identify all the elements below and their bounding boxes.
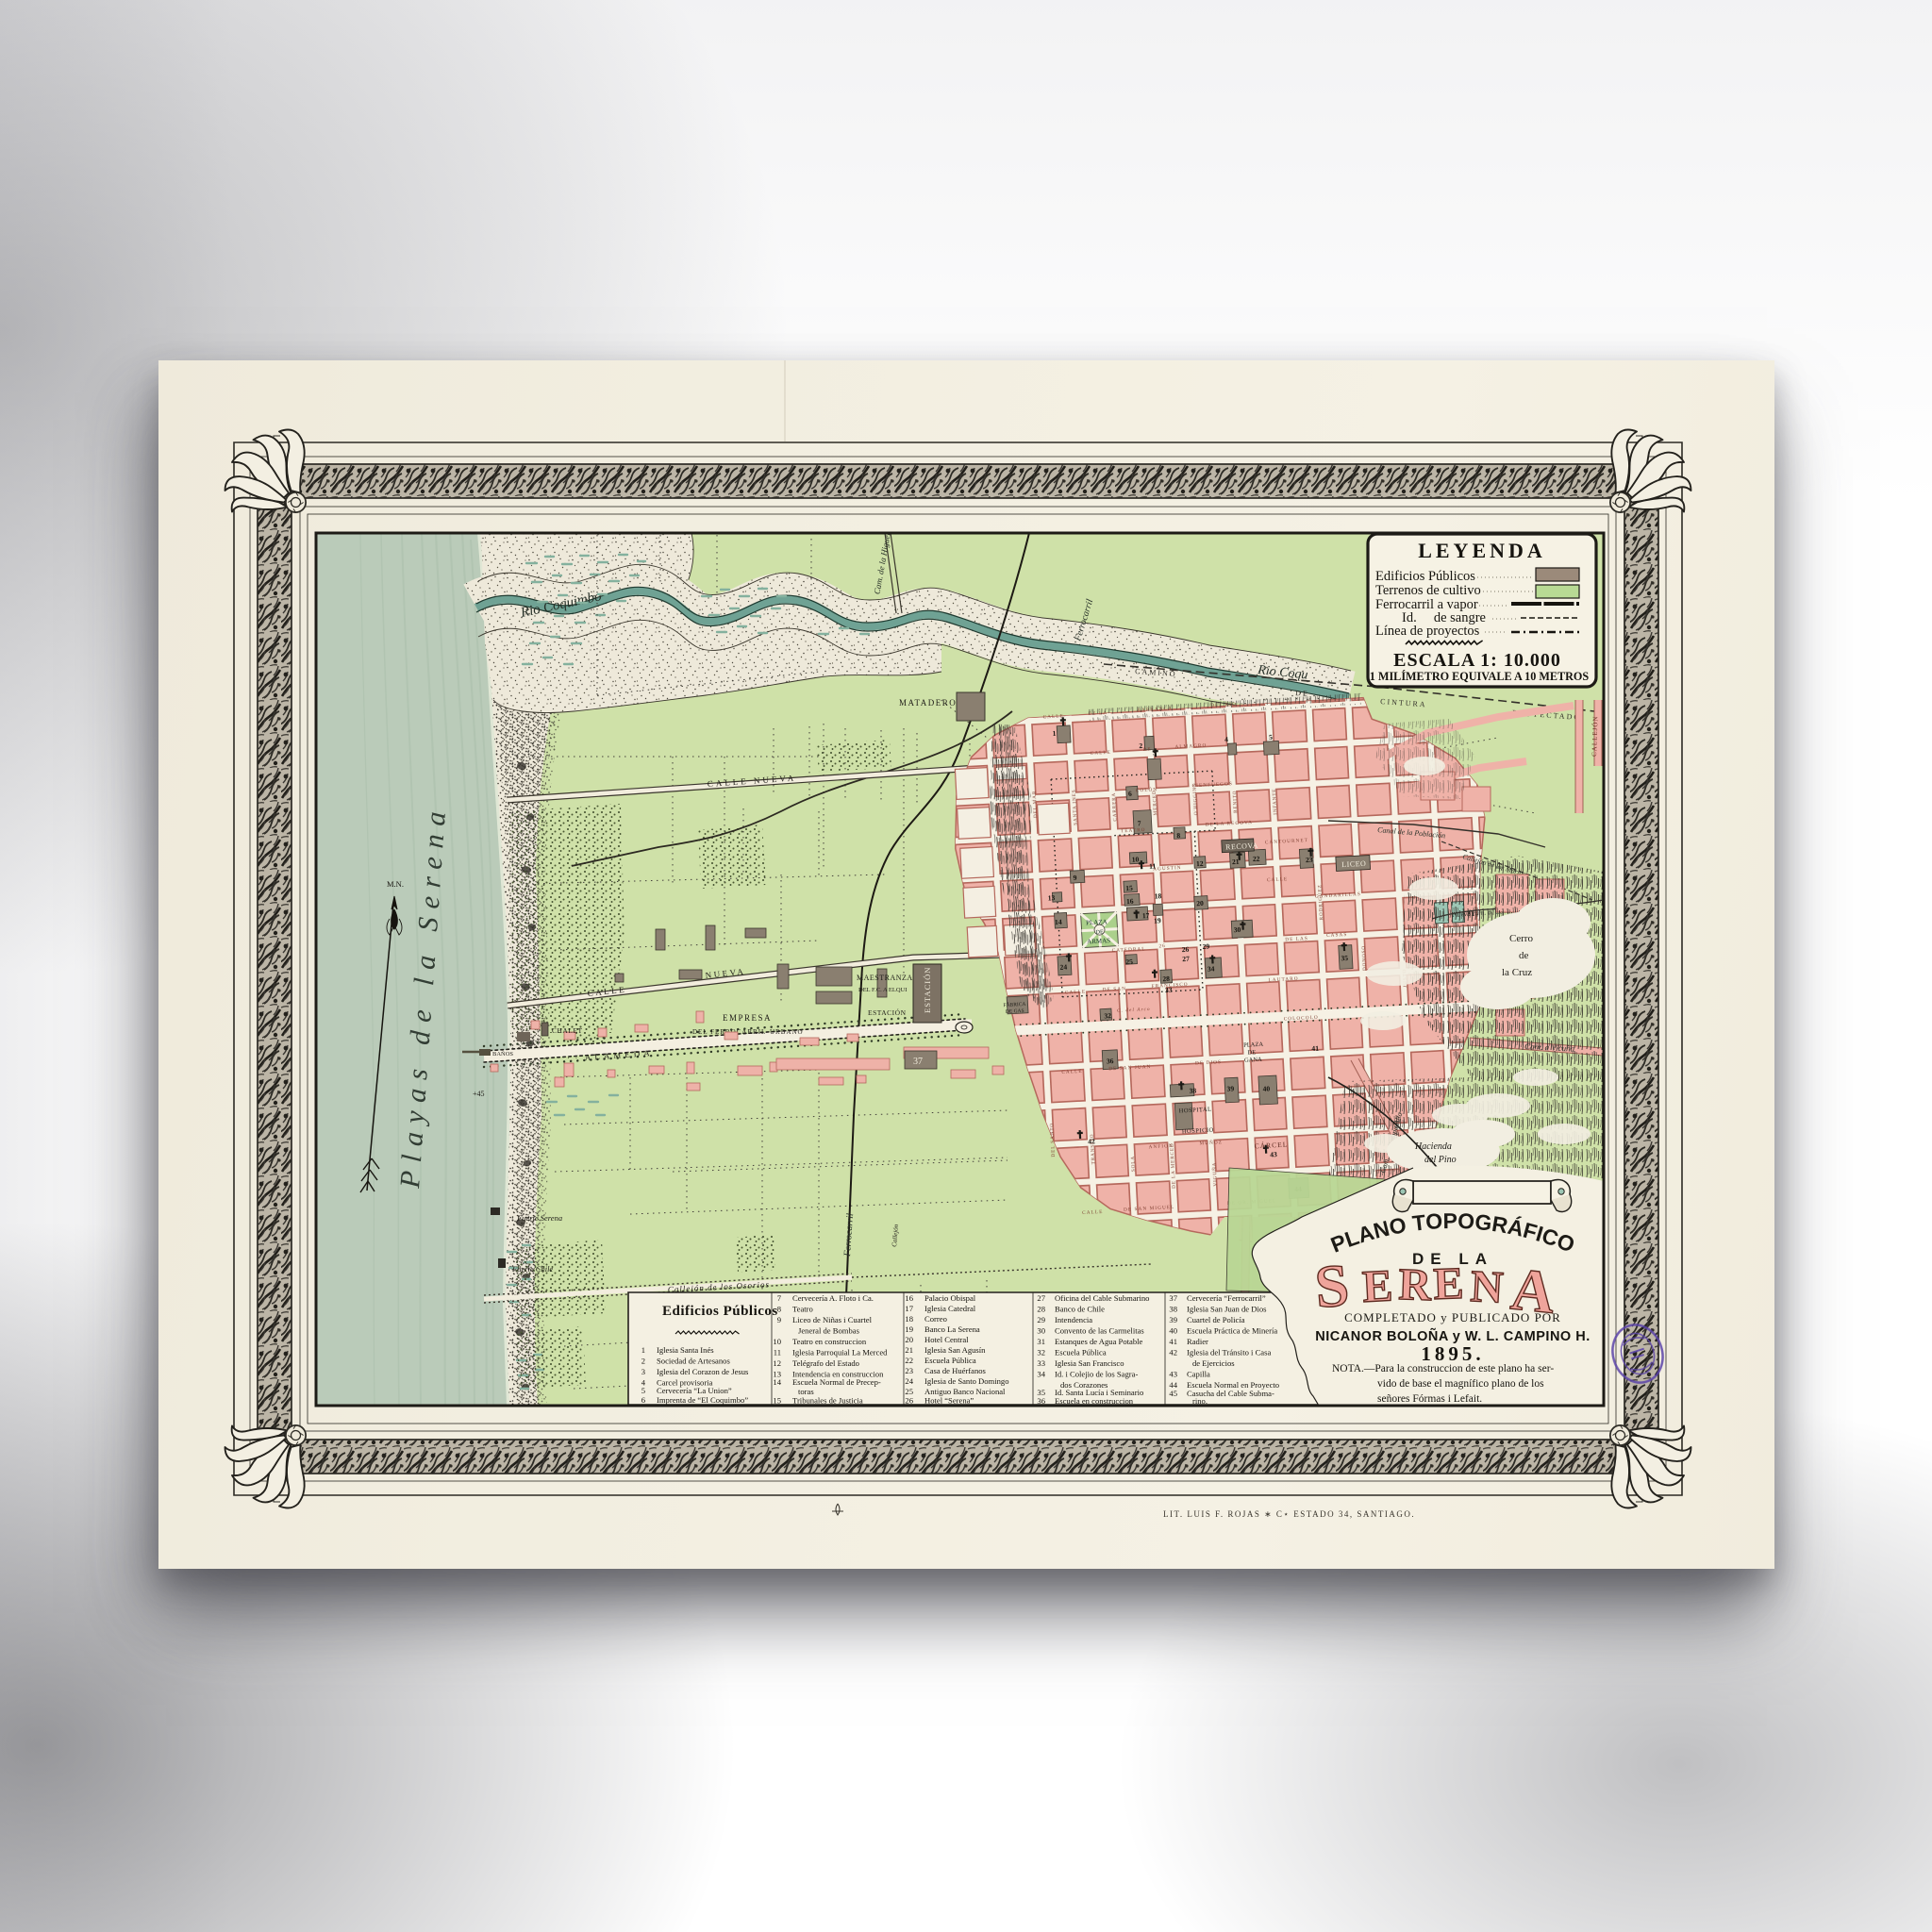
svg-text:GANA: GANA <box>1244 1057 1262 1064</box>
svg-text:CHALET: CHALET <box>552 1026 583 1035</box>
svg-text:41: 41 <box>1311 1044 1319 1053</box>
svg-text:28: 28 <box>1037 1305 1045 1314</box>
svg-text:Escuela Pública: Escuela Pública <box>924 1356 976 1365</box>
svg-text:14: 14 <box>1055 918 1062 926</box>
svg-text:13: 13 <box>1047 893 1055 902</box>
svg-text:37: 37 <box>1169 1293 1177 1303</box>
svg-text:Telégrafo del Estado: Telégrafo del Estado <box>792 1358 859 1368</box>
svg-text:Terrenos de cultivo: Terrenos de cultivo <box>1375 583 1481 598</box>
svg-text:11: 11 <box>774 1348 781 1357</box>
svg-text:Sociedad de Artesanos: Sociedad de Artesanos <box>657 1357 730 1366</box>
svg-text:19: 19 <box>905 1324 913 1334</box>
svg-text:PLAZA: PLAZA <box>1086 918 1108 926</box>
svg-text:22: 22 <box>905 1356 913 1365</box>
svg-text:26: 26 <box>905 1396 913 1406</box>
svg-text:Iglesia del Tránsito i Casa: Iglesia del Tránsito i Casa <box>1187 1348 1271 1357</box>
svg-text:24: 24 <box>1059 962 1067 971</box>
svg-text:Cervecería “Ferrocarril”: Cervecería “Ferrocarril” <box>1187 1293 1266 1303</box>
svg-text:ESTACIÓN: ESTACIÓN <box>923 967 932 1013</box>
svg-text:9: 9 <box>777 1315 781 1324</box>
svg-text:Cuartel de Policía: Cuartel de Policía <box>1187 1315 1245 1324</box>
svg-text:10: 10 <box>773 1337 781 1346</box>
svg-text:ESCALA 1: 10.000: ESCALA 1: 10.000 <box>1393 650 1561 671</box>
svg-text:43: 43 <box>1169 1370 1177 1379</box>
svg-text:DE: DE <box>1247 1049 1256 1056</box>
svg-text:7: 7 <box>777 1293 782 1303</box>
svg-text:Banco La Serena: Banco La Serena <box>924 1324 980 1334</box>
svg-text:38: 38 <box>1169 1305 1177 1314</box>
svg-text:Jeneral de Bombas: Jeneral de Bombas <box>798 1326 860 1336</box>
svg-text:30: 30 <box>1233 925 1241 934</box>
svg-text:DE GAS: DE GAS <box>1006 1008 1024 1015</box>
svg-text:Fuerte Chile: Fuerte Chile <box>511 1264 553 1274</box>
svg-text:1895.: 1895. <box>1421 1342 1484 1365</box>
svg-text:URBANO: URBANO <box>770 1028 804 1036</box>
svg-text:34: 34 <box>1207 964 1215 973</box>
svg-text:Cerro: Cerro <box>1509 933 1534 944</box>
svg-text:E: E <box>1361 1260 1394 1312</box>
svg-text:la Cruz: la Cruz <box>1502 967 1532 978</box>
svg-text:vido de base el magnífico plan: vido de base el magnífico plano de los <box>1377 1378 1544 1390</box>
svg-text:toras: toras <box>798 1387 814 1396</box>
svg-text:24: 24 <box>905 1376 913 1386</box>
svg-text:Liceo de Niñas i Cuartel: Liceo de Niñas i Cuartel <box>792 1315 873 1324</box>
svg-text:31: 31 <box>1037 1337 1045 1346</box>
svg-text:Hotel Central: Hotel Central <box>924 1335 969 1344</box>
svg-text:10: 10 <box>1131 855 1139 863</box>
svg-text:Escuela Pública: Escuela Pública <box>1055 1348 1107 1357</box>
svg-text:16: 16 <box>1126 897 1134 906</box>
svg-text:CALLE: CALLE <box>1091 750 1112 757</box>
svg-text:CALLE: CALLE <box>1061 1069 1083 1075</box>
svg-text:Iglesia Santa Inés: Iglesia Santa Inés <box>657 1345 714 1355</box>
svg-text:1: 1 <box>1052 729 1056 738</box>
svg-text:Convento de las Carmelitas: Convento de las Carmelitas <box>1055 1326 1144 1336</box>
svg-text:DE: DE <box>1142 746 1151 752</box>
svg-text:43: 43 <box>1270 1150 1277 1158</box>
svg-text:Casa de Huérfanos: Casa de Huérfanos <box>924 1366 987 1375</box>
svg-text:Escuela Práctica de Minería: Escuela Práctica de Minería <box>1187 1326 1277 1336</box>
svg-text:27: 27 <box>1037 1293 1045 1303</box>
svg-text:Antiguo Banco Nacional: Antiguo Banco Nacional <box>924 1387 1006 1396</box>
svg-text:3: 3 <box>641 1367 645 1376</box>
svg-text:CASAS: CASAS <box>1326 932 1348 939</box>
svg-text:9: 9 <box>1073 874 1076 882</box>
svg-text:14: 14 <box>773 1377 781 1387</box>
svg-text:12: 12 <box>1196 859 1204 868</box>
svg-text:Estanques de Agua Potable: Estanques de Agua Potable <box>1055 1337 1143 1346</box>
svg-text:ARMAS: ARMAS <box>1087 937 1110 945</box>
svg-text:15: 15 <box>1125 884 1133 892</box>
svg-text:25: 25 <box>905 1387 913 1396</box>
svg-text:26: 26 <box>1182 945 1190 954</box>
svg-text:8: 8 <box>777 1305 781 1314</box>
svg-text:27: 27 <box>1182 955 1190 963</box>
svg-text:del Pino: del Pino <box>1424 1155 1457 1165</box>
svg-text:29: 29 <box>1037 1315 1045 1324</box>
svg-text:32: 32 <box>1037 1348 1045 1357</box>
svg-text:RECOVA: RECOVA <box>1225 841 1258 852</box>
svg-text:M.N.: M.N. <box>387 879 404 889</box>
svg-text:CALLE: CALLE <box>1267 876 1289 883</box>
svg-text:MAESTRANZA: MAESTRANZA <box>857 974 913 982</box>
svg-text:LIT. LUIS F. ROJAS ∗ C⋆ ESTADO: LIT. LUIS F. ROJAS ∗ C⋆ ESTADO 34, SANTI… <box>1163 1509 1415 1519</box>
svg-text:37: 37 <box>913 1057 923 1067</box>
svg-text:18: 18 <box>1155 891 1162 900</box>
svg-text:Línea de proyectos: Línea de proyectos <box>1375 624 1480 639</box>
svg-text:15: 15 <box>773 1396 781 1406</box>
svg-text:1 MILÍMETRO EQUIVALE A 10 METR: 1 MILÍMETRO EQUIVALE A 10 METROS <box>1370 670 1590 683</box>
svg-text:Id. i Colejio de los Sagra-: Id. i Colejio de los Sagra- <box>1055 1370 1138 1379</box>
svg-text:6: 6 <box>1128 790 1132 798</box>
svg-text:COMPLETADO y PUBLICADO POR: COMPLETADO y PUBLICADO POR <box>1344 1310 1561 1324</box>
svg-text:BENITO: BENITO <box>1232 790 1239 813</box>
svg-text:Intendencia: Intendencia <box>1055 1315 1092 1324</box>
svg-text:22: 22 <box>1253 855 1260 863</box>
svg-text:CALLEJÓN: CALLEJÓN <box>1591 715 1600 757</box>
svg-text:DEL F.C. A ELQUI: DEL F.C. A ELQUI <box>858 987 907 993</box>
svg-text:LEYENDA: LEYENDA <box>1418 539 1546 562</box>
svg-text:36: 36 <box>1107 1057 1114 1065</box>
svg-text:5: 5 <box>641 1386 645 1395</box>
svg-text:40: 40 <box>1262 1084 1270 1092</box>
svg-text:20: 20 <box>905 1335 913 1344</box>
svg-text:Hacienda: Hacienda <box>1414 1141 1452 1152</box>
svg-text:17: 17 <box>1142 911 1150 920</box>
svg-text:Imprenta de “El Coquimbo”: Imprenta de “El Coquimbo” <box>657 1395 748 1405</box>
svg-text:23: 23 <box>1306 856 1313 864</box>
svg-text:CALLE: CALLE <box>1065 989 1087 995</box>
svg-text:Fuerte Serena: Fuerte Serena <box>516 1213 562 1223</box>
svg-text:Correo: Correo <box>924 1314 947 1324</box>
svg-text:Banco de Chile: Banco de Chile <box>1055 1305 1105 1314</box>
svg-text:+45: +45 <box>473 1090 485 1098</box>
svg-text:38: 38 <box>1189 1086 1196 1094</box>
svg-text:21: 21 <box>905 1345 913 1355</box>
svg-text:Cervecería A. Floto i Ca.: Cervecería A. Floto i Ca. <box>792 1293 874 1303</box>
svg-text:Iglesia San Francisco: Iglesia San Francisco <box>1055 1358 1124 1368</box>
svg-text:35: 35 <box>1341 954 1348 962</box>
svg-text:Edificios Públicos: Edificios Públicos <box>1375 569 1475 584</box>
svg-text:DE: DE <box>1096 929 1105 935</box>
svg-text:Teatro en construccion: Teatro en construccion <box>792 1337 867 1346</box>
svg-text:20: 20 <box>1196 899 1204 908</box>
svg-text:CALLE: CALLE <box>1043 713 1065 720</box>
svg-text:29: 29 <box>1202 942 1209 951</box>
svg-text:LICEO: LICEO <box>1341 859 1366 869</box>
svg-text:NOTA.—Para la construccion de: NOTA.—Para la construccion de este plano… <box>1332 1363 1554 1374</box>
svg-text:N: N <box>1469 1261 1505 1313</box>
svg-text:17: 17 <box>905 1304 913 1313</box>
svg-text:12: 12 <box>773 1358 781 1368</box>
svg-text:1: 1 <box>641 1345 645 1355</box>
svg-text:Edificios Públicos: Edificios Públicos <box>662 1304 778 1319</box>
svg-text:25: 25 <box>1125 958 1133 966</box>
svg-text:Tribunales de Justicia: Tribunales de Justicia <box>792 1396 863 1406</box>
svg-text:5: 5 <box>1269 733 1273 741</box>
svg-text:R: R <box>1398 1259 1434 1310</box>
svg-text:Teatro: Teatro <box>792 1305 813 1314</box>
svg-text:Iglesia del Corazon de Jesus: Iglesia del Corazon de Jesus <box>657 1367 749 1376</box>
svg-text:32: 32 <box>1104 1011 1111 1020</box>
svg-text:30: 30 <box>1037 1326 1045 1336</box>
svg-text:19: 19 <box>1154 916 1161 924</box>
svg-text:Iglesia Parroquial La Merced: Iglesia Parroquial La Merced <box>792 1348 888 1357</box>
svg-text:BAÑOS: BAÑOS <box>492 1050 513 1058</box>
svg-text:CALLE: CALLE <box>1082 1209 1104 1216</box>
svg-text:EMPRESA: EMPRESA <box>723 1013 772 1023</box>
svg-text:CÁRCEL: CÁRCEL <box>1254 1140 1288 1151</box>
svg-text:8: 8 <box>1176 831 1180 840</box>
svg-text:7: 7 <box>1137 819 1141 827</box>
svg-text:39: 39 <box>1226 1084 1234 1092</box>
svg-text:Hotel “Serena”: Hotel “Serena” <box>924 1396 974 1406</box>
svg-text:PLAZA: PLAZA <box>1243 1041 1264 1049</box>
svg-text:SOLA: SOLA <box>1130 1156 1137 1172</box>
svg-text:Radier: Radier <box>1187 1337 1208 1346</box>
svg-text:Capilla: Capilla <box>1187 1370 1210 1379</box>
svg-text:42: 42 <box>1169 1348 1177 1357</box>
svg-text:23: 23 <box>905 1366 913 1375</box>
svg-text:Oficina del Cable Submarino: Oficina del Cable Submarino <box>1055 1293 1149 1303</box>
svg-text:E: E <box>1433 1258 1465 1309</box>
svg-text:Iglesia de Santo Domingo: Iglesia de Santo Domingo <box>924 1376 1009 1386</box>
svg-text:40: 40 <box>1169 1326 1177 1336</box>
svg-text:18: 18 <box>905 1314 913 1324</box>
svg-text:Iglesia Catedral: Iglesia Catedral <box>924 1304 976 1313</box>
svg-text:de Ejercicios: de Ejercicios <box>1192 1358 1235 1368</box>
svg-text:28: 28 <box>1162 974 1170 983</box>
svg-text:39: 39 <box>1169 1315 1177 1324</box>
svg-text:16: 16 <box>905 1293 913 1303</box>
svg-text:Escuela Normal de Precep-: Escuela Normal de Precep- <box>792 1377 881 1387</box>
svg-text:ESTACIÓN: ESTACIÓN <box>868 1008 907 1017</box>
svg-text:45: 45 <box>1169 1389 1177 1398</box>
svg-text:Palacio Obispal: Palacio Obispal <box>924 1293 976 1303</box>
svg-text:33: 33 <box>1037 1358 1045 1368</box>
svg-text:4: 4 <box>1224 735 1228 743</box>
svg-text:señores Fórmas i Lefait.: señores Fórmas i Lefait. <box>1377 1393 1482 1405</box>
svg-text:MATADERO: MATADERO <box>899 698 957 708</box>
svg-text:34: 34 <box>1037 1370 1045 1379</box>
svg-text:Iglesia San Juan de Dios: Iglesia San Juan de Dios <box>1187 1305 1267 1314</box>
svg-text:2: 2 <box>641 1357 645 1366</box>
svg-text:Iglesia San Agusín: Iglesia San Agusín <box>924 1345 986 1355</box>
svg-text:41: 41 <box>1169 1337 1177 1346</box>
svg-text:de: de <box>1519 950 1529 961</box>
svg-text:Cervecería “La Union”: Cervecería “La Union” <box>657 1386 732 1395</box>
svg-text:26: 26 <box>1158 943 1166 949</box>
svg-text:6: 6 <box>641 1395 646 1405</box>
